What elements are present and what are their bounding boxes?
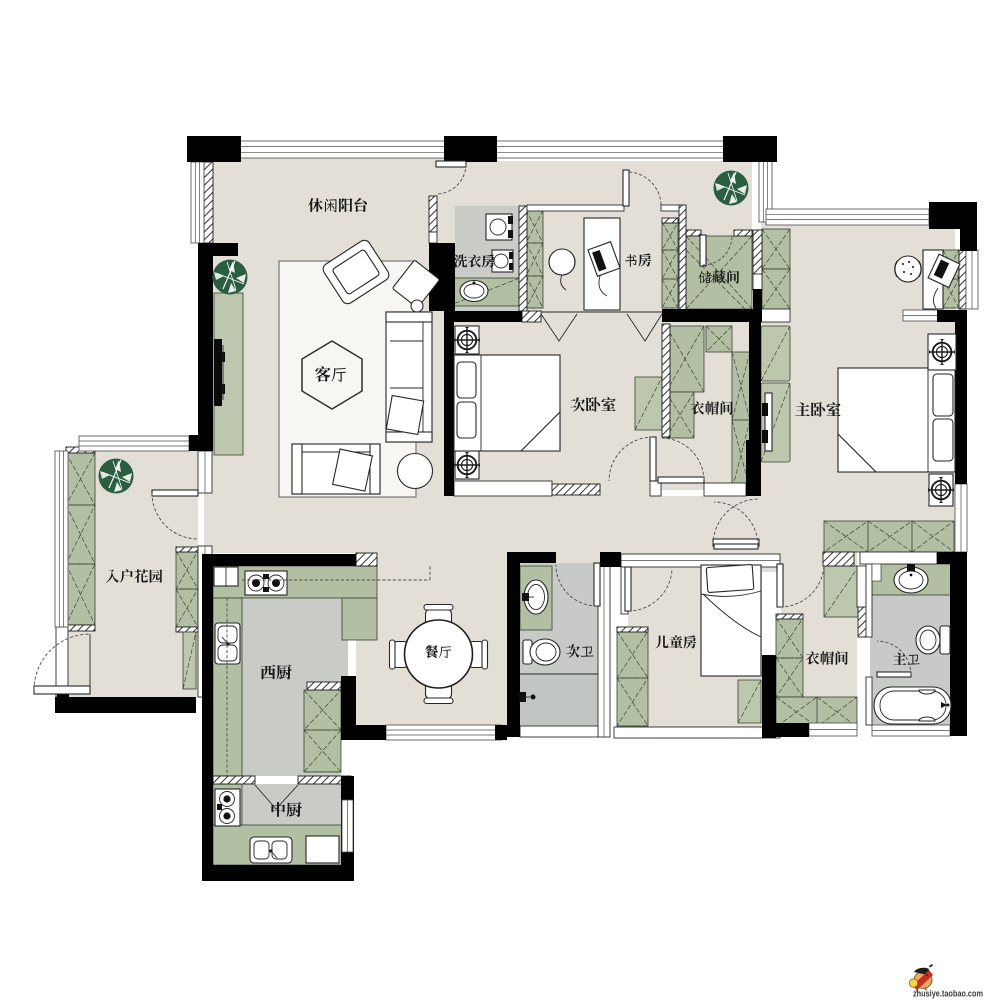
svg-text:zhusiye.taobao.com: zhusiye.taobao.com [913, 989, 983, 1000]
